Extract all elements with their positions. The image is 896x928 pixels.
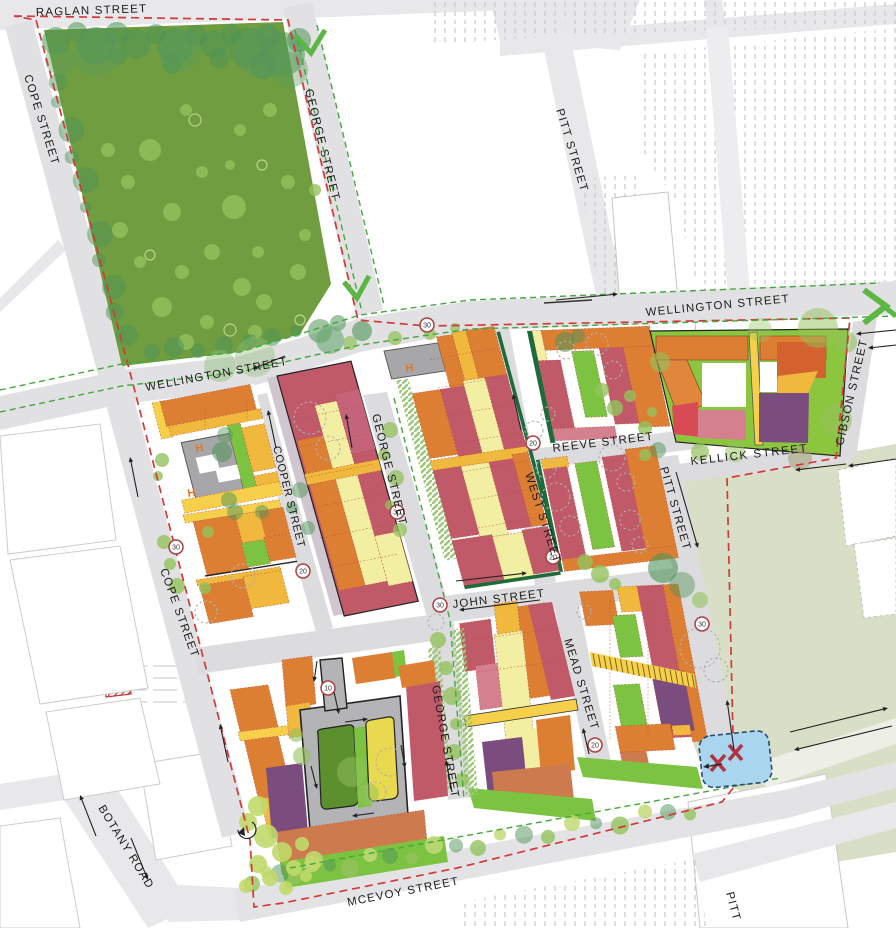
svg-text:30: 30 xyxy=(698,622,706,629)
svg-text:20: 20 xyxy=(591,743,599,750)
svg-text:30: 30 xyxy=(172,545,180,552)
svg-text:30: 30 xyxy=(423,323,431,330)
svg-text:30: 30 xyxy=(436,603,444,610)
svg-text:20: 20 xyxy=(529,441,537,448)
svg-text:10: 10 xyxy=(324,686,332,693)
svg-text:20: 20 xyxy=(299,569,307,576)
